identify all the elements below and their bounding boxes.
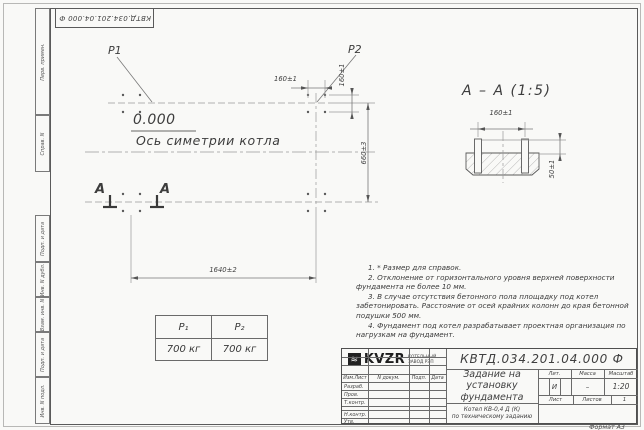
tb-subtitle: Котел КВ-0,4 Д (К) по техническому задан…: [446, 403, 538, 425]
margin-box-sprav-n: Справ. N: [35, 115, 50, 172]
margin-box-perv-primen: Перв. примен.: [35, 8, 50, 115]
tb-sheets-label: Листов: [573, 395, 611, 404]
notes-block: 1. * Размер для справок. 2. Отклонение о…: [356, 263, 634, 340]
dim-160-top: 160±1: [274, 75, 297, 83]
tb-title: Задание на установку фундамента: [446, 369, 538, 403]
note-line: 3. В случае отсутствия бетонного пола пл…: [356, 292, 634, 321]
kvzr-logo-subtext: КОТЕЛЬНЫЙ ЗАВОД РЭП: [408, 355, 436, 365]
section-letter-right: А: [160, 182, 170, 197]
margin-label: Подп. и дата: [40, 221, 46, 255]
margin-label: Инв. N подл.: [40, 384, 46, 417]
tb-mass-value: –: [571, 378, 604, 395]
margin-box-vzam-inv: Взам. инв. N: [35, 297, 50, 332]
margin-label: Перв. примен.: [40, 43, 46, 81]
tb-row-nkontr: Н.контр.: [344, 412, 366, 418]
tb-lit-value: И: [549, 378, 560, 395]
section-view-title: А – А (1:5): [462, 83, 551, 99]
margin-label: Взам. инв. N: [40, 298, 46, 331]
margin-box-inv-podl: Инв. N подл.: [35, 377, 50, 424]
load-table-value-p1: 700 кг: [156, 338, 211, 360]
dim-50: 50±1: [548, 160, 556, 179]
tb-scale-header: Масштаб: [604, 369, 638, 378]
dim-50-wrap: 50±1: [542, 152, 562, 186]
tb-sheets-value: 1: [611, 395, 638, 404]
drawing-sheet: КВТД.034.201.04.000 Ф Перв. примен. Спра…: [0, 0, 644, 430]
top-stamp-box: КВТД.034.201.04.000 Ф: [55, 8, 154, 28]
tb-col-podp: Подп.: [409, 374, 429, 382]
tb-mass-header: Масса: [571, 369, 604, 378]
dim-160-section: 160±1: [487, 109, 515, 117]
margin-label: Инв. N дубл.: [40, 263, 46, 296]
tb-line: [560, 378, 561, 395]
section-letter-left: А: [95, 182, 105, 197]
margin-box-inv-dubl: Инв. N дубл.: [35, 262, 50, 297]
tb-line: [342, 418, 446, 419]
note-line: 2. Отклонение от горизонтального уровня …: [356, 273, 634, 292]
tb-sheet-label: Лист: [538, 395, 573, 404]
tb-line: [342, 406, 446, 407]
note-line: 1. * Размер для справок.: [356, 263, 634, 273]
dim-160-side-wrap: 160±1: [332, 55, 352, 95]
tb-line: [538, 404, 638, 405]
margin-label: Подп. и дата: [40, 337, 46, 371]
margin-box-podp-data-2: Подп. и дата: [35, 332, 50, 377]
format-label: Формат А3: [575, 424, 639, 430]
tb-doc-number: КВТД.034.201.04.000 Ф: [446, 349, 638, 369]
tb-line: [342, 365, 446, 366]
tb-row-tkontr: Т.контр.: [344, 400, 366, 406]
note-line: 4. Фундамент под котел разрабатывает про…: [356, 321, 634, 340]
dim-660: 660±3: [360, 141, 368, 164]
top-stamp-text: КВТД.034.201.04.000 Ф: [59, 14, 151, 22]
tb-row-razrab: Разраб.: [344, 384, 364, 390]
dim-1640: 1640±2: [190, 266, 256, 274]
tb-line: [429, 349, 430, 423]
tb-col-izm: Изм.Лист: [342, 374, 368, 382]
margin-box-podp-data-1: Подп. и дата: [35, 215, 50, 262]
load-table-header-p2: P₂: [212, 316, 267, 338]
margin-label: Справ. N: [40, 132, 46, 155]
load-table: P₁ P₂ 700 кг 700 кг: [155, 315, 268, 361]
tb-row-prov: Пров.: [344, 392, 359, 398]
tb-org-cell: ≋ KVZR КОТЕЛЬНЫЙ ЗАВОД РЭП: [342, 349, 442, 370]
tb-col-doc: N докум.: [368, 374, 409, 382]
tb-lit-header: Лит.: [538, 369, 571, 378]
dim-160-side: 160±1: [338, 64, 346, 87]
symmetry-axis-label: Ось симетрии котла: [136, 133, 281, 148]
tb-line: [368, 349, 369, 423]
load-table-header-p1: P₁: [156, 316, 211, 338]
title-block: Изм.Лист N докум. Подп. Дата Разраб. Про…: [341, 348, 637, 424]
tb-line: [342, 357, 446, 358]
load-table-value-p2: 700 кг: [212, 338, 267, 360]
tb-scale-value: 1:20: [604, 378, 638, 395]
point-load-label-p1: P1: [108, 44, 122, 57]
tb-col-data: Дата: [429, 374, 446, 382]
tb-row-utv: Утв.: [344, 419, 355, 425]
tb-line: [409, 349, 410, 423]
elevation-label: 0.000: [133, 112, 176, 128]
dim-660-wrap: 660±3: [354, 130, 374, 175]
